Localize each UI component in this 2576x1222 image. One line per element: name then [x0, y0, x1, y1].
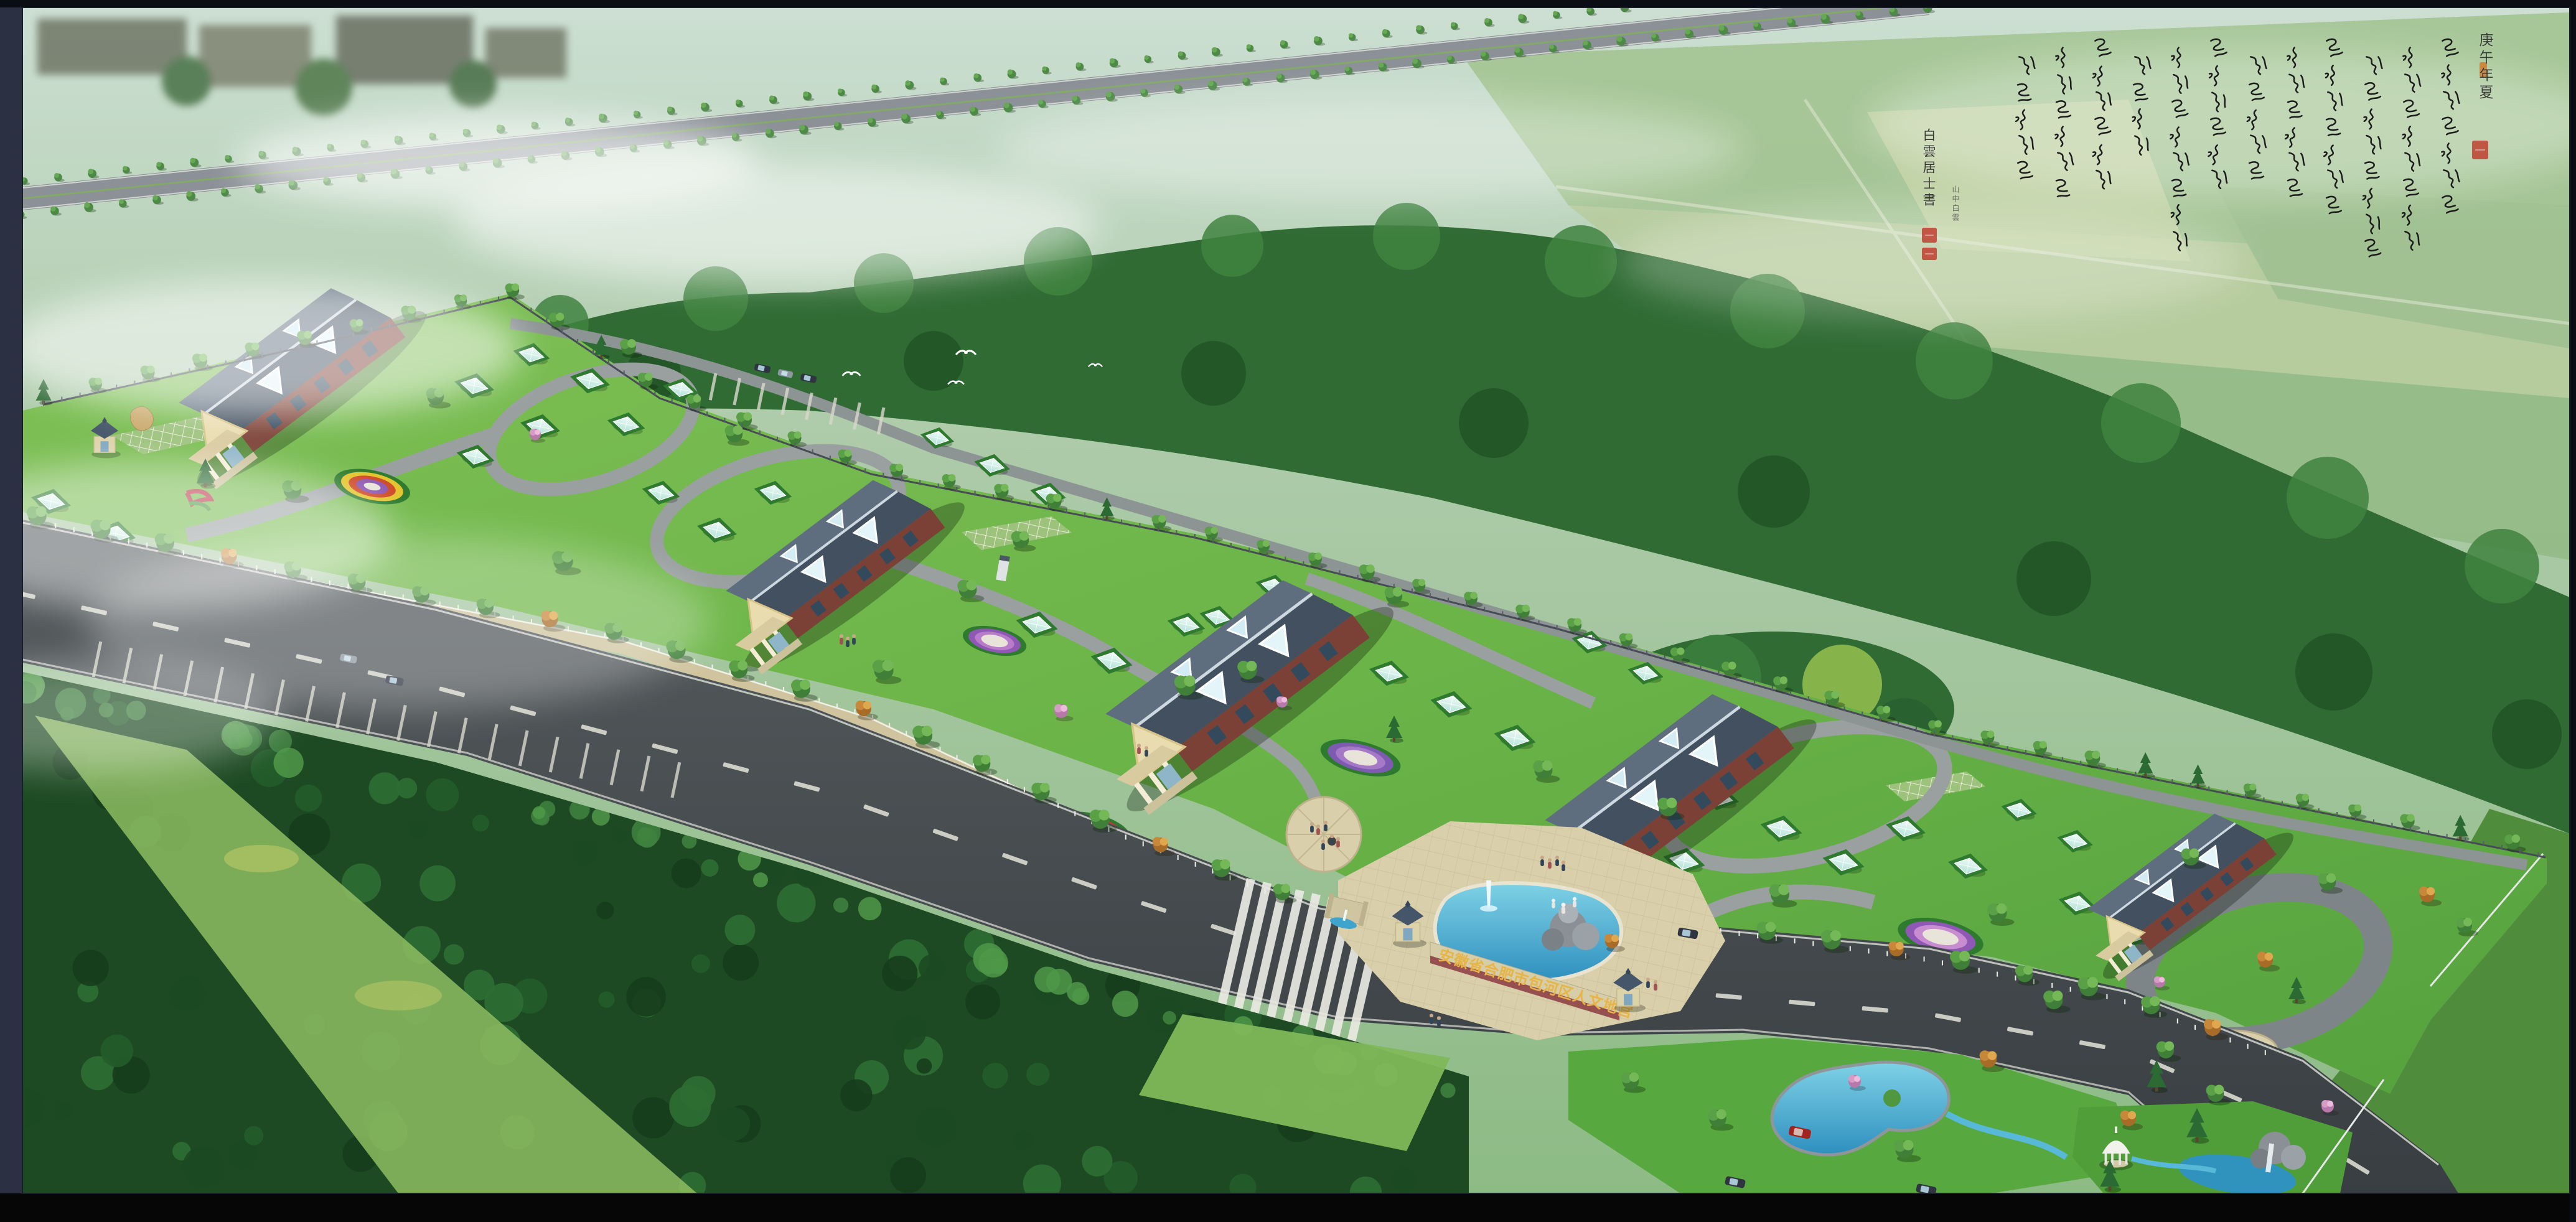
forest-canopy	[753, 872, 768, 887]
visitor	[1321, 839, 1325, 850]
visitor	[1310, 822, 1314, 833]
forest-canopy	[273, 748, 303, 778]
photo: 安徽省合肥市包河区人文地宫	[0, 0, 2576, 1208]
forest-canopy	[101, 1035, 133, 1067]
forest-canopy	[444, 944, 464, 964]
forest-canopy	[1013, 1131, 1033, 1150]
visitor	[846, 637, 850, 647]
visitor	[1646, 977, 1650, 988]
rendering-canvas: 安徽省合肥市包河区人文地宫	[0, 0, 2576, 1222]
visitor	[1316, 824, 1320, 835]
forest-canopy	[858, 897, 882, 921]
forest-canopy	[571, 840, 597, 866]
aerial-rendering: 安徽省合肥市包河区人文地宫	[0, 0, 2576, 1222]
forest-canopy	[691, 954, 710, 973]
forest-canopy	[73, 949, 109, 986]
forest-canopy	[724, 915, 755, 945]
forest-canopy	[669, 1085, 711, 1127]
forest-canopy	[716, 1107, 750, 1140]
forest-canopy	[596, 902, 614, 919]
forest-canopy	[833, 898, 848, 913]
forest-canopy	[1026, 1063, 1049, 1086]
forest-canopy	[419, 865, 456, 902]
forest-canopy	[637, 828, 657, 847]
visitor	[1145, 746, 1148, 757]
forest-canopy	[1163, 1011, 1176, 1025]
calligraphy-signature: 白雲居士書	[1919, 128, 1938, 209]
forest-canopy	[1112, 991, 1138, 1017]
circular-plaza	[1286, 797, 1361, 872]
forest-canopy	[244, 1126, 263, 1145]
visitor	[1430, 1014, 1433, 1024]
visitor	[840, 634, 843, 645]
visitor	[1437, 1016, 1441, 1027]
visitor	[1324, 821, 1328, 831]
forest-canopy	[982, 1063, 1008, 1088]
forest-canopy	[701, 859, 718, 877]
forest-canopy	[916, 1107, 955, 1147]
visitor	[852, 634, 856, 645]
visitor	[1330, 834, 1334, 845]
forest-canopy	[368, 772, 400, 804]
forest-canopy	[1067, 982, 1087, 1002]
forest-canopy	[890, 1157, 926, 1193]
calligraphy-secondary-inscription: 山中白雲	[1951, 185, 1961, 223]
forest-canopy	[295, 785, 322, 812]
forest-canopy	[919, 954, 945, 981]
forest-canopy	[1392, 1168, 1417, 1193]
forest-canopy	[626, 977, 666, 1017]
forest-canopy	[1082, 1146, 1112, 1177]
forest-canopy	[979, 948, 1008, 977]
visitor	[1654, 980, 1657, 991]
visitor	[1555, 856, 1559, 866]
forest-canopy	[892, 1016, 926, 1050]
forest-canopy	[882, 956, 917, 991]
forest-canopy	[672, 859, 701, 889]
visitor	[1540, 856, 1544, 866]
forest-canopy	[723, 944, 759, 981]
visitor	[1137, 744, 1141, 754]
calligraphy-date-inscription: 庚午年夏	[2474, 32, 2495, 102]
forest-canopy	[170, 976, 205, 1011]
forest-canopy	[777, 884, 815, 922]
forest-canopy	[409, 821, 427, 839]
forest-canopy	[917, 1058, 932, 1074]
forest-canopy	[632, 1097, 673, 1138]
forest-canopy	[54, 1101, 72, 1119]
forest-canopy	[598, 991, 614, 1007]
visitor	[1548, 858, 1552, 869]
forest-canopy	[426, 778, 459, 811]
forest-canopy	[840, 1080, 873, 1112]
forest-canopy	[472, 814, 489, 831]
forest-canopy	[183, 1146, 224, 1187]
forest-canopy	[533, 806, 545, 819]
forest-canopy	[965, 984, 1000, 1019]
visitor	[1562, 861, 1565, 871]
forest-canopy	[1440, 1083, 1455, 1098]
forest-canopy	[612, 828, 627, 843]
visitor	[1336, 837, 1340, 847]
